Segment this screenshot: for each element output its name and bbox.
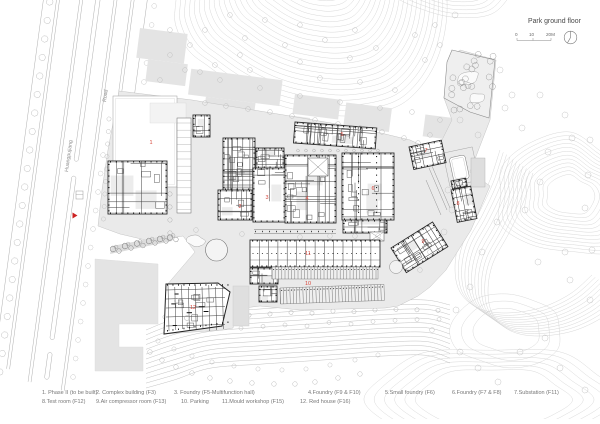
svg-text:12: 12 (190, 305, 196, 311)
svg-text:5.Small foundry (F6): 5.Small foundry (F6) (385, 390, 435, 396)
svg-text:2: 2 (238, 204, 241, 210)
svg-text:20M: 20M (546, 32, 555, 37)
svg-text:9: 9 (421, 239, 424, 245)
svg-text:6: 6 (371, 186, 374, 192)
svg-text:8: 8 (456, 201, 459, 207)
svg-text:10. Parking: 10. Parking (181, 399, 209, 405)
svg-text:Park ground floor: Park ground floor (528, 18, 582, 25)
svg-text:5: 5 (340, 132, 343, 138)
svg-text:2. Complex building (F3): 2. Complex building (F3) (96, 390, 156, 396)
svg-text:7.Substation (F11): 7.Substation (F11) (514, 390, 559, 396)
svg-text:10: 10 (305, 281, 311, 287)
svg-text:11: 11 (305, 251, 311, 257)
svg-text:3. Foundry (F5-Multifunction: 3. Foundry (F5-Multifunction hall) (174, 390, 255, 396)
svg-text:3: 3 (265, 195, 268, 201)
svg-text:1. Phase II (to be built): 1. Phase II (to be built) (42, 390, 98, 396)
svg-text:11.Mould workshop (F15): 11.Mould workshop (F15) (222, 399, 284, 405)
svg-text:0: 0 (515, 32, 518, 37)
svg-text:1: 1 (149, 140, 152, 146)
svg-text:4.Foundry (F9 & F10): 4.Foundry (F9 & F10) (308, 390, 361, 396)
svg-text:9.Air compressor room (F13): 9.Air compressor room (F13) (96, 399, 166, 405)
svg-text:7: 7 (424, 148, 427, 154)
svg-text:12. Red house (F16): 12. Red house (F16) (300, 399, 351, 405)
svg-text:10: 10 (529, 32, 535, 37)
svg-text:8.Test room (F12): 8.Test room (F12) (42, 399, 86, 405)
svg-text:4: 4 (305, 196, 308, 202)
svg-text:6.Foundry (F7 & F8): 6.Foundry (F7 & F8) (452, 390, 502, 396)
